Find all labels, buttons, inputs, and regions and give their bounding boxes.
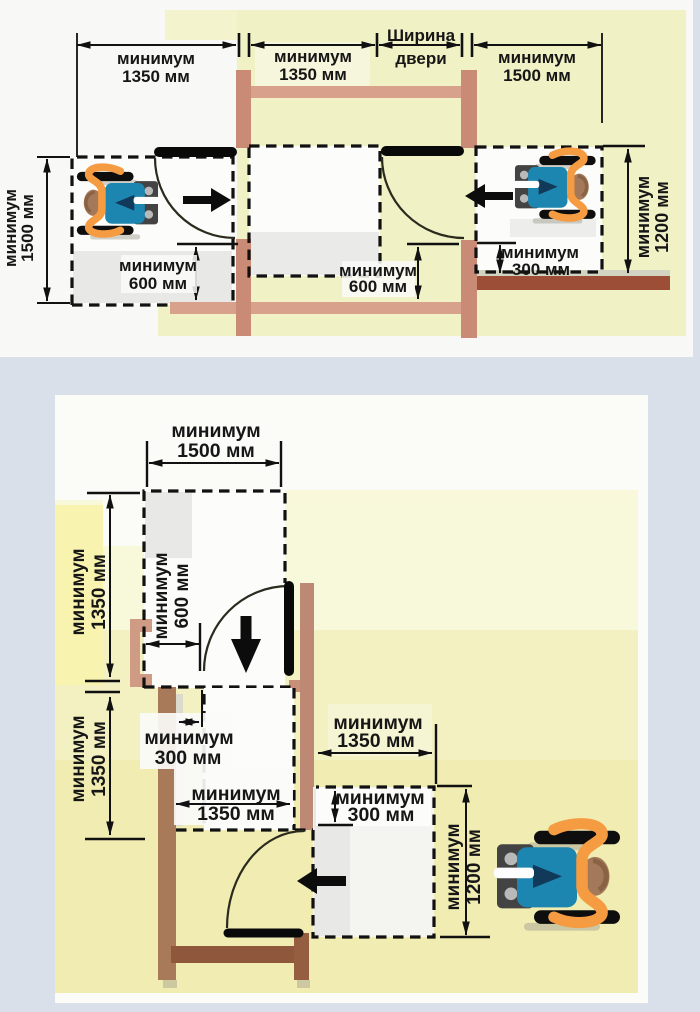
svg-text:минимум: минимум <box>151 552 172 639</box>
svg-text:1350 мм: 1350 мм <box>89 554 110 630</box>
svg-text:1350 мм: 1350 мм <box>122 67 190 86</box>
svg-text:минимум: минимум <box>191 783 280 805</box>
svg-text:минимум: минимум <box>171 420 260 442</box>
svg-text:1500 мм: 1500 мм <box>177 440 255 462</box>
svg-text:600 мм: 600 мм <box>129 274 187 293</box>
svg-text:минимум: минимум <box>119 256 197 275</box>
svg-text:1500 мм: 1500 мм <box>503 66 571 85</box>
svg-text:300 мм: 300 мм <box>348 804 415 826</box>
svg-text:1200 мм: 1200 мм <box>464 829 485 905</box>
svg-text:1350 мм: 1350 мм <box>89 721 110 797</box>
svg-text:1350 мм: 1350 мм <box>337 730 415 752</box>
svg-text:1350 мм: 1350 мм <box>197 803 275 825</box>
svg-text:600 мм: 600 мм <box>172 563 193 628</box>
svg-text:минимум: минимум <box>498 48 576 67</box>
svg-text:1200 мм: 1200 мм <box>652 181 672 253</box>
svg-text:1350 мм: 1350 мм <box>279 65 347 84</box>
svg-text:600 мм: 600 мм <box>349 277 407 296</box>
svg-text:минимум: минимум <box>68 548 89 635</box>
svg-text:двери: двери <box>395 49 446 68</box>
svg-text:Ширина: Ширина <box>387 26 456 45</box>
svg-text:минимум: минимум <box>633 176 653 259</box>
svg-text:300 мм: 300 мм <box>155 747 222 769</box>
svg-text:минимум: минимум <box>144 727 233 749</box>
svg-text:минимум: минимум <box>117 49 195 68</box>
svg-text:1500 мм: 1500 мм <box>18 194 37 262</box>
svg-text:минимум: минимум <box>443 823 464 910</box>
svg-text:минимум: минимум <box>274 47 352 66</box>
svg-text:300 мм: 300 мм <box>512 260 570 279</box>
svg-text:минимум: минимум <box>68 715 89 802</box>
